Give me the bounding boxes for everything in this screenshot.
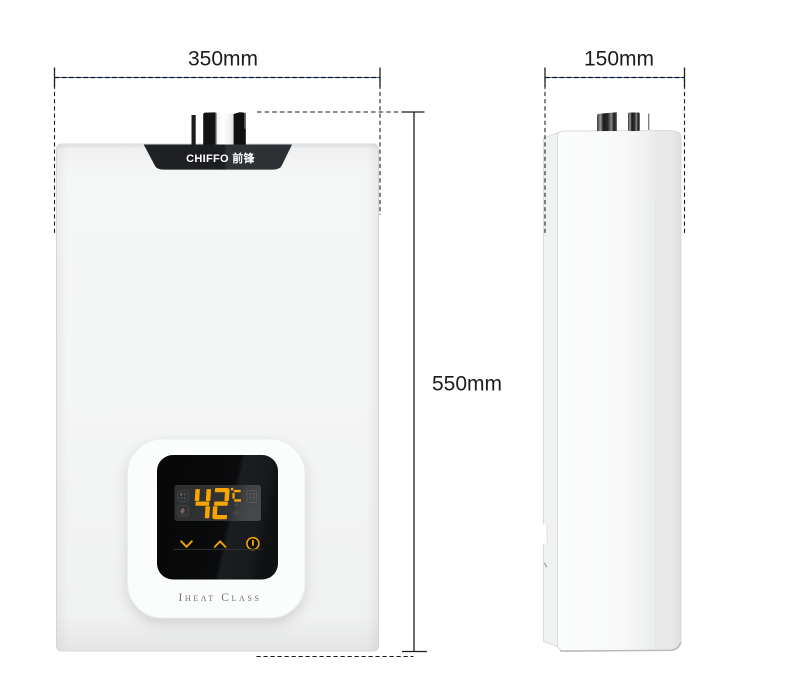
svg-text:Iheat Class: Iheat Class bbox=[179, 592, 262, 604]
svg-text:350mm: 350mm bbox=[188, 48, 258, 71]
svg-text:150mm: 150mm bbox=[584, 48, 654, 71]
svg-text:550mm: 550mm bbox=[432, 373, 502, 396]
svg-text:CHIFFO 前锋: CHIFFO 前锋 bbox=[186, 151, 255, 165]
